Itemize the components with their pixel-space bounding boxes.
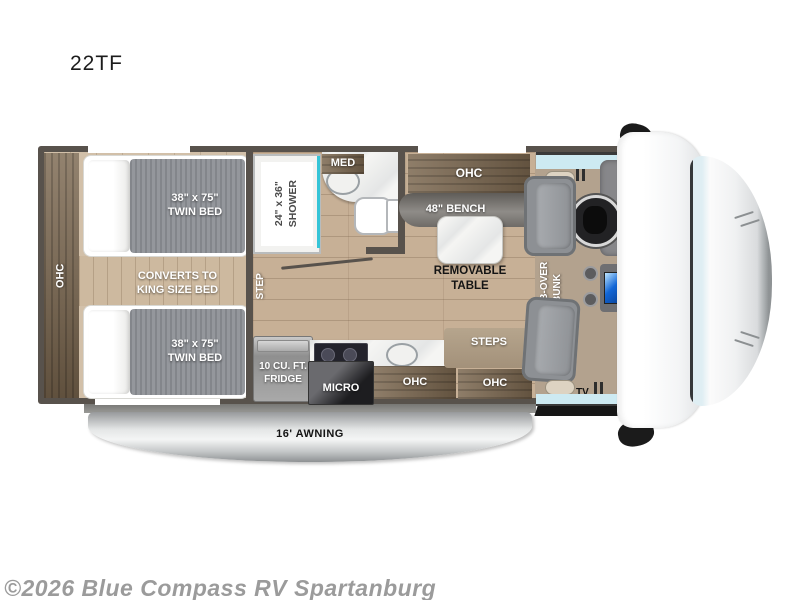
kitchen-overhead-cabinet: OHC (374, 366, 456, 399)
fridge: 10 CU. FT. FRIDGE (253, 336, 313, 402)
burner (321, 348, 335, 362)
hood-highlight (734, 339, 754, 347)
bedroom-window-bottom (95, 398, 220, 405)
awning: 16' AWNING (88, 412, 532, 462)
floorplan-page: 22TF 16' AWNING OHC 38" x 75" TWIN BED 3… (0, 0, 800, 600)
entry-steps: STEPS (444, 328, 534, 368)
entry-step: STEP (252, 260, 270, 312)
medicine-cabinet: MED (322, 154, 364, 174)
bath-wall-horizontal (366, 247, 405, 254)
console-knob (583, 266, 598, 281)
dinette-ohc-label: OHC (456, 166, 483, 181)
driver-seat (524, 176, 576, 256)
hood-highlight (740, 331, 760, 339)
burner (343, 348, 357, 362)
rear-overhead-cabinet: OHC (44, 153, 79, 398)
dash-vents (576, 168, 588, 186)
dash-vent-pill (545, 380, 575, 395)
twin-bed-top: 38" x 75" TWIN BED (84, 156, 248, 256)
pillow (88, 310, 130, 394)
removable-table-label: REMOVABLE TABLE (415, 264, 525, 294)
twin-bed-bottom: 38" x 75" TWIN BED (84, 306, 248, 398)
shower-label: 24" x 36" SHOWER (273, 180, 300, 227)
med-label: MED (331, 157, 355, 171)
cab-hood (690, 156, 772, 406)
page-title: 22TF (70, 52, 123, 76)
cab-step-trim (534, 406, 621, 416)
twin-bed-bottom-label: 38" x 75" TWIN BED (142, 338, 248, 366)
seat-cushion (536, 183, 571, 249)
microwave: MICRO (308, 361, 374, 405)
shower-glass-accent (317, 156, 320, 248)
micro-label: MICRO (309, 382, 373, 396)
bedroom-window-top (88, 146, 190, 153)
twin-bed-top-label: 38" x 75" TWIN BED (142, 192, 248, 220)
entry-ohc-label: OHC (483, 377, 507, 391)
awning-label: 16' AWNING (88, 427, 532, 441)
seat-cushion (534, 304, 576, 376)
hood-highlight (734, 211, 754, 219)
dinette-overhead-cabinet: OHC (408, 154, 530, 193)
step-label: STEP (255, 273, 268, 299)
fridge-top (257, 340, 309, 352)
passenger-seat (521, 296, 581, 384)
kitchen-sink (386, 343, 418, 367)
entry-overhead-cabinet: OHC (458, 369, 532, 399)
console-knob (583, 292, 598, 307)
steering-wheel (570, 195, 622, 247)
steering-hub (583, 206, 607, 234)
dealer-watermark: ©2026 Blue Compass RV Spartanburg (4, 575, 436, 600)
pillow (88, 160, 130, 252)
steps-label: STEPS (444, 336, 534, 350)
rear-ohc-label: OHC (55, 263, 69, 287)
fridge-label: 10 CU. FT. FRIDGE (254, 361, 312, 386)
shower: 24" x 36" SHOWER (253, 154, 321, 254)
removable-table (437, 216, 503, 264)
hood-highlight (740, 219, 760, 227)
dinette-window (418, 146, 526, 153)
king-convert-label: CONVERTS TO KING SIZE BED (100, 270, 255, 298)
kitchen-ohc-label: OHC (403, 376, 427, 390)
bench-label: 48" BENCH (399, 203, 512, 217)
